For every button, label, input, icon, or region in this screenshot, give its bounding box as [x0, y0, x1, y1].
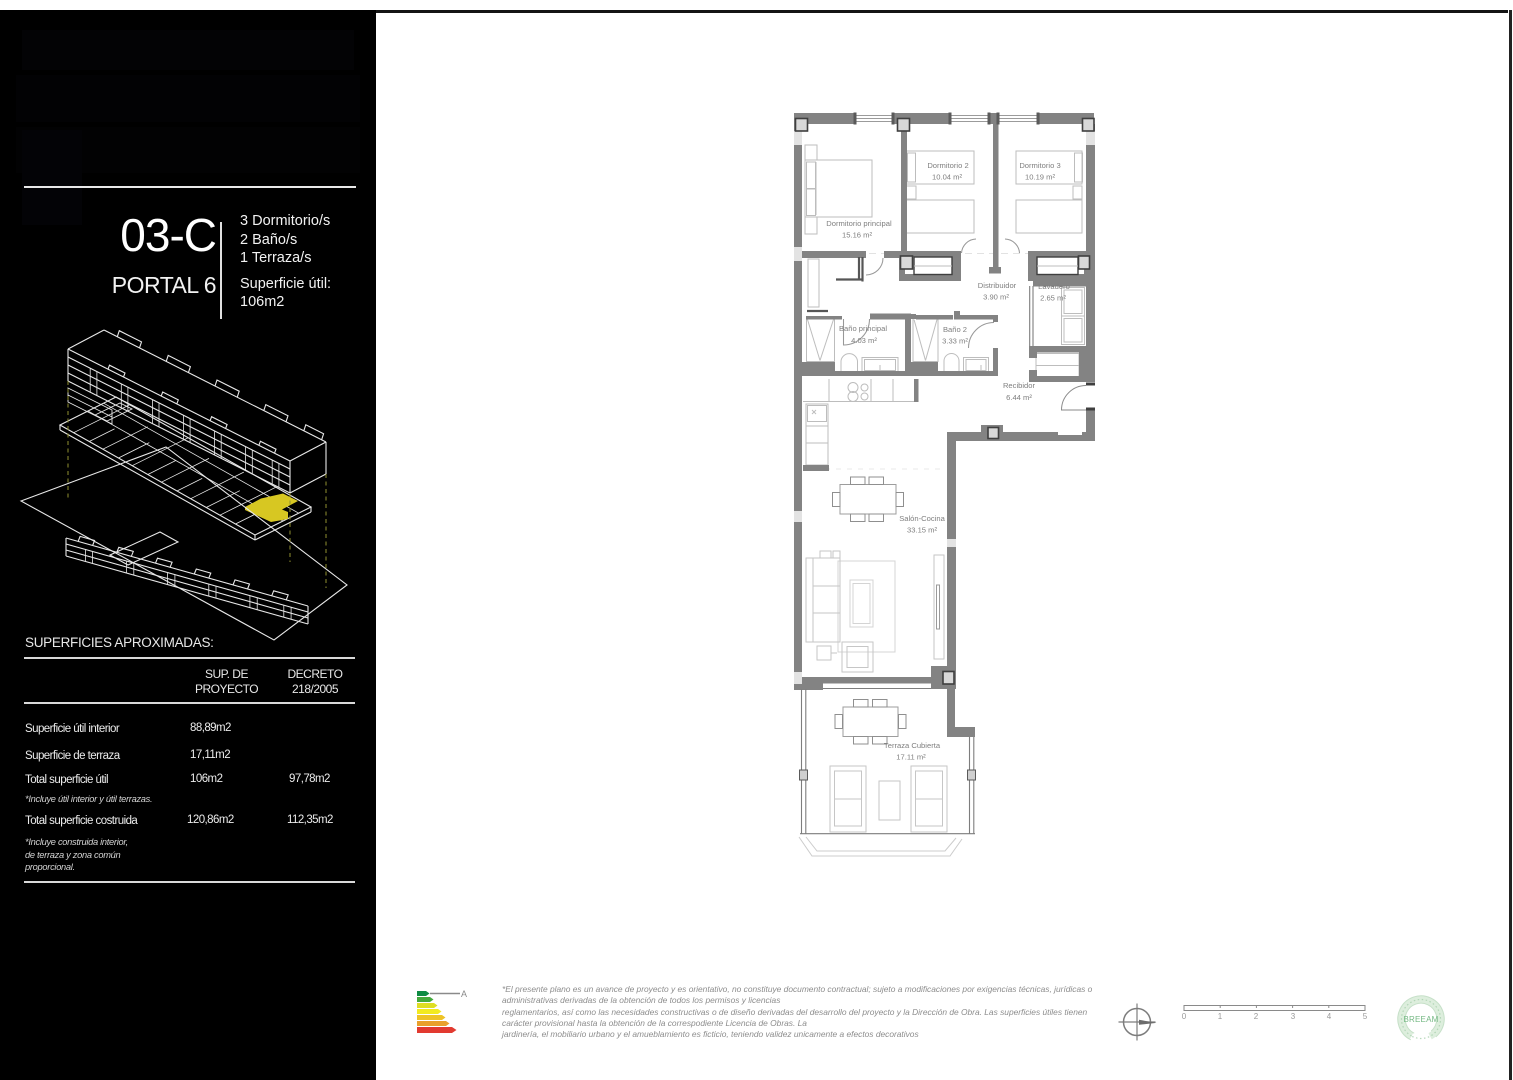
svg-text:15.16 m²: 15.16 m² — [842, 231, 872, 240]
svg-text:3: 3 — [1291, 1012, 1296, 1021]
svg-text:Lavadero: Lavadero — [1038, 282, 1070, 291]
svg-text:Dormitorio 3: Dormitorio 3 — [1019, 161, 1060, 170]
svg-text:3.33 m²: 3.33 m² — [942, 337, 968, 346]
svg-text:6.44 m²: 6.44 m² — [1006, 393, 1032, 402]
svg-text:Dormitorio 2: Dormitorio 2 — [927, 161, 968, 170]
svg-text:17.11 m²: 17.11 m² — [896, 753, 926, 762]
svg-text:Salón-Cocina: Salón-Cocina — [899, 514, 945, 523]
svg-text:BREEAM: BREEAM — [1404, 1015, 1439, 1024]
svg-text:2.65 m²: 2.65 m² — [1040, 294, 1066, 303]
svg-text:4.03 m²: 4.03 m² — [851, 336, 877, 345]
svg-text:A: A — [461, 989, 467, 999]
svg-text:Recibidor: Recibidor — [1003, 381, 1036, 390]
svg-text:10.19 m²: 10.19 m² — [1025, 173, 1055, 182]
svg-text:Distribuidor: Distribuidor — [978, 281, 1017, 290]
svg-text:4: 4 — [1327, 1012, 1332, 1021]
svg-text:Baño principal: Baño principal — [839, 324, 887, 333]
svg-text:Terraza Cubierta: Terraza Cubierta — [884, 741, 941, 750]
svg-text:33.15 m²: 33.15 m² — [907, 526, 937, 535]
svg-text:Dormitorio principal: Dormitorio principal — [826, 219, 892, 228]
svg-text:3.90 m²: 3.90 m² — [983, 293, 1009, 302]
svg-text:Baño 2: Baño 2 — [943, 325, 967, 334]
svg-text:5: 5 — [1363, 1012, 1368, 1021]
svg-text:10.04 m²: 10.04 m² — [932, 173, 962, 182]
